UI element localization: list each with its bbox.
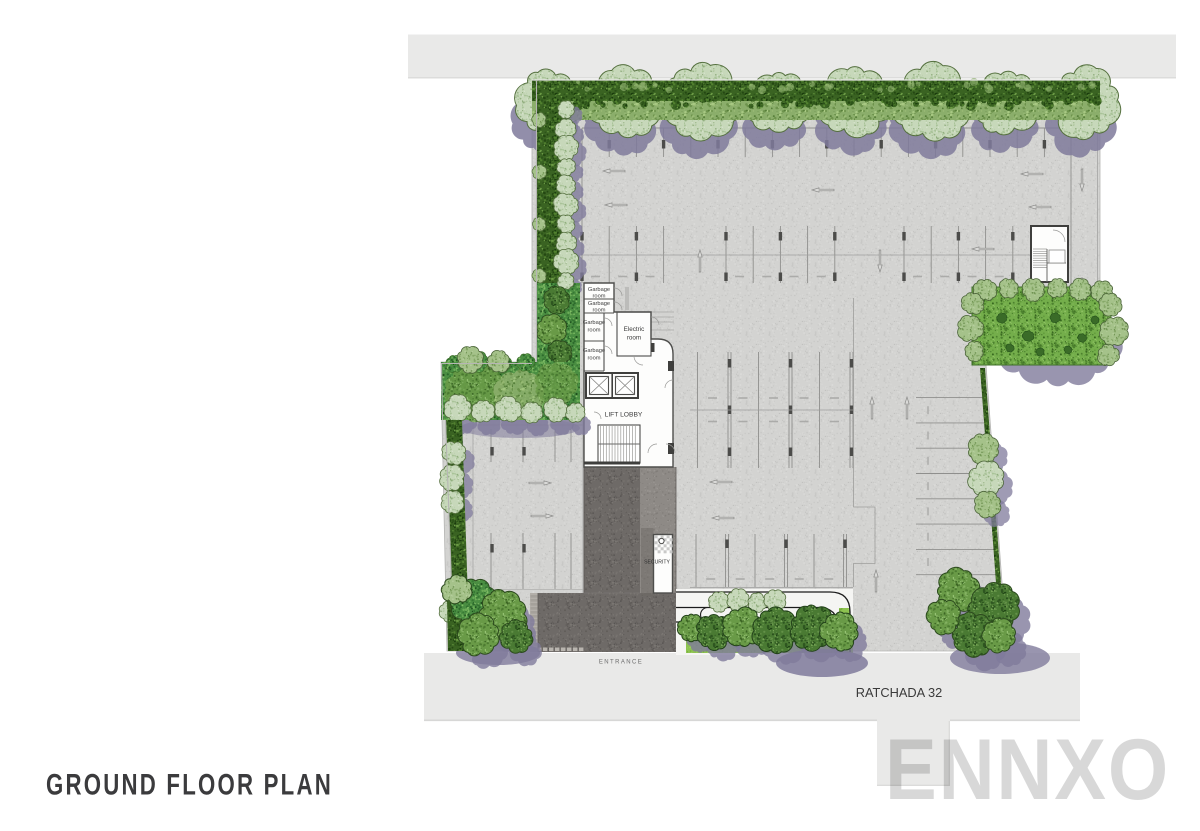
svg-text:room: room [588, 356, 601, 362]
svg-text:Garbage: Garbage [588, 301, 610, 307]
svg-text:ENTRANCE: ENTRANCE [599, 660, 643, 666]
svg-text:room: room [593, 294, 606, 300]
svg-text:GROUND FLOOR PLAN: GROUND FLOOR PLAN [46, 769, 333, 802]
svg-text:room: room [627, 335, 641, 342]
svg-text:SECURITY: SECURITY [644, 560, 670, 566]
svg-text:room: room [593, 308, 606, 314]
svg-text:Garbage: Garbage [583, 320, 605, 326]
svg-text:Garbage: Garbage [583, 348, 605, 354]
svg-text:RATCHADA 32: RATCHADA 32 [856, 685, 943, 700]
svg-text:ENNXO: ENNXO [885, 722, 1170, 818]
svg-text:room: room [588, 328, 601, 334]
svg-text:LIFT LOBBY: LIFT LOBBY [605, 412, 643, 419]
svg-text:Garbage: Garbage [588, 287, 610, 293]
svg-text:Electric: Electric [624, 326, 645, 333]
